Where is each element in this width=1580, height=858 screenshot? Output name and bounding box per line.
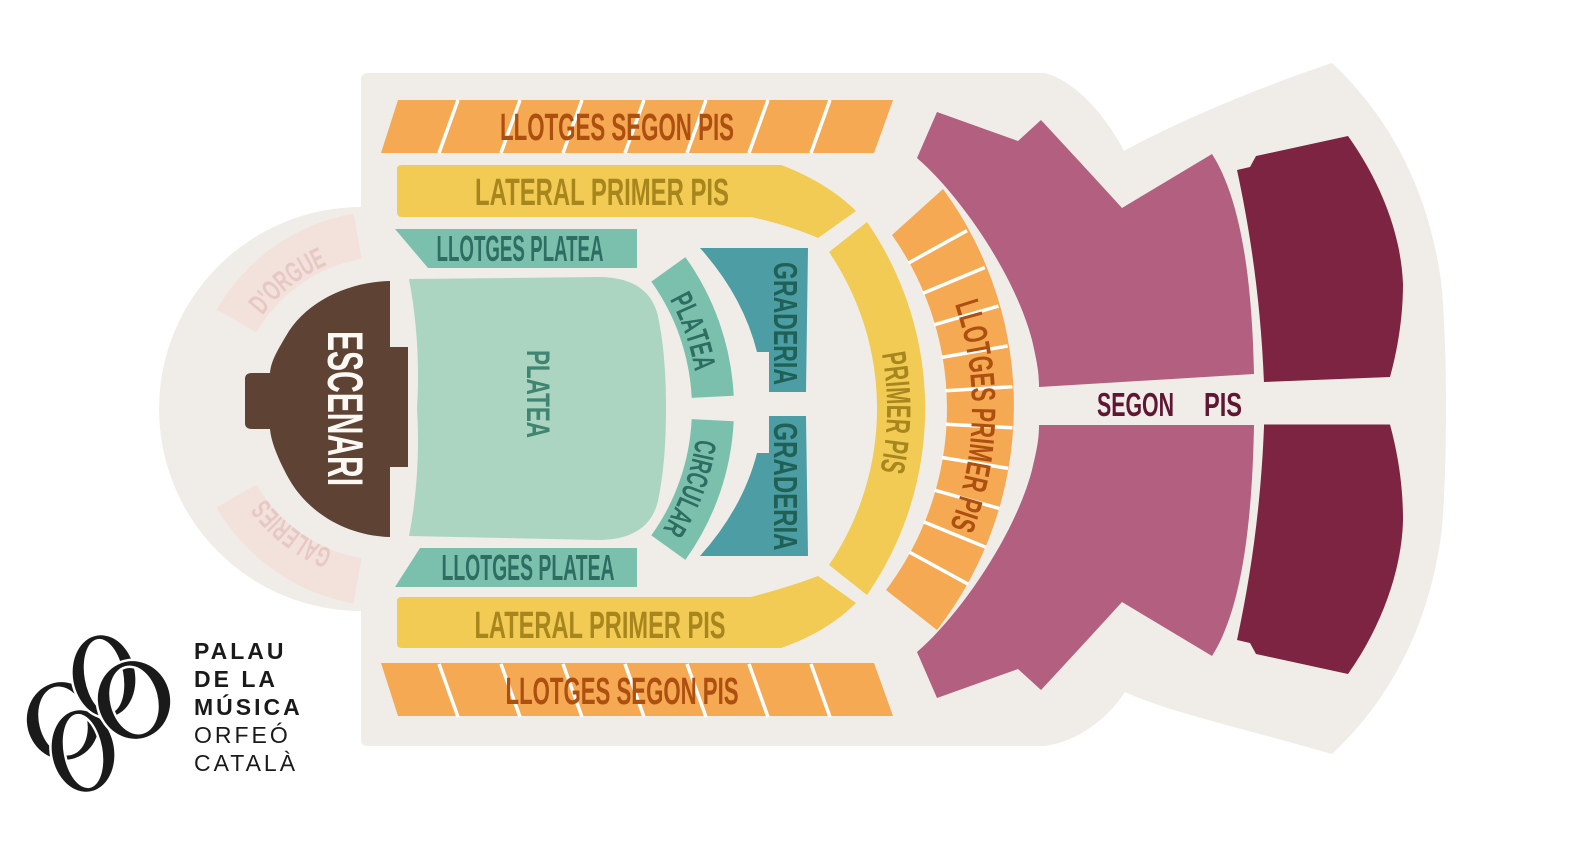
svg-text:LLOTGES SEGON PIS: LLOTGES SEGON PIS <box>500 107 734 149</box>
svg-text:SEGON: SEGON <box>1097 388 1174 424</box>
svg-text:R: R <box>879 418 917 435</box>
svg-text:MÚSICA: MÚSICA <box>194 693 303 720</box>
svg-text:ESCENARI: ESCENARI <box>317 331 373 486</box>
svg-text:GRADERIA: GRADERIA <box>766 262 802 385</box>
svg-text:ORFEÓ: ORFEÓ <box>194 722 291 748</box>
svg-text:P: P <box>965 408 1004 423</box>
svg-text:PLATEA: PLATEA <box>520 350 555 438</box>
svg-text:DE LA: DE LA <box>194 666 278 692</box>
svg-text:PALAU: PALAU <box>194 638 287 664</box>
svg-text:LLOTGES PLATEA: LLOTGES PLATEA <box>437 228 604 269</box>
svg-text:LLOTGES PLATEA: LLOTGES PLATEA <box>441 547 614 588</box>
svg-text:PIS: PIS <box>1204 388 1242 424</box>
svg-text:M: M <box>879 386 917 405</box>
svg-text:GRADERIA: GRADERIA <box>766 422 802 550</box>
svg-text:LLOTGES SEGON PIS: LLOTGES SEGON PIS <box>506 671 739 713</box>
svg-text:CATALÀ: CATALÀ <box>194 750 298 776</box>
svg-text:E: E <box>880 405 918 419</box>
svg-text:LATERAL PRIMER PIS: LATERAL PRIMER PIS <box>475 172 729 214</box>
svg-text:S: S <box>964 386 1003 402</box>
svg-text:LATERAL PRIMER PIS: LATERAL PRIMER PIS <box>474 605 725 647</box>
